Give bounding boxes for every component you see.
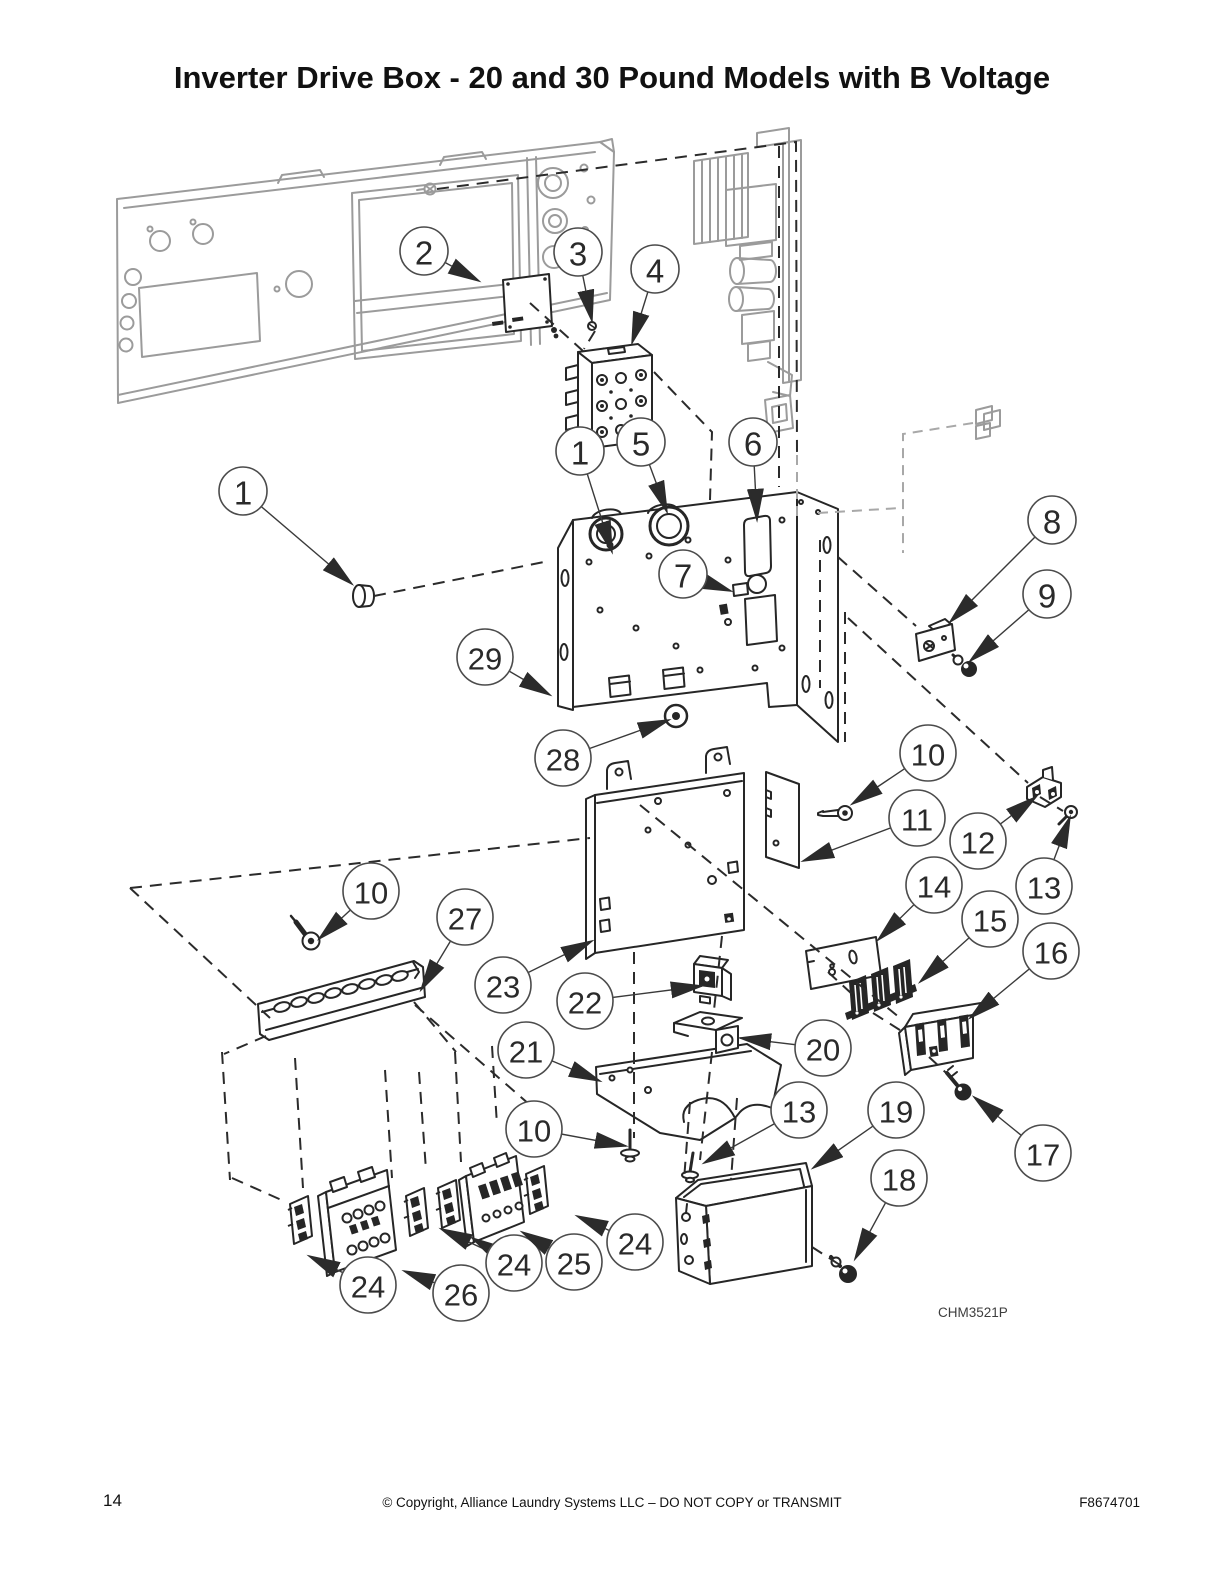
washer-grommet-28 <box>665 705 687 727</box>
exploded-parts-diagram: 2341156789292810111213141516102723222120… <box>0 0 1224 1584</box>
callout-number: 5 <box>632 426 650 463</box>
callout-number: 14 <box>917 870 951 905</box>
slot-6 <box>744 516 771 576</box>
cover-pad-2 <box>503 274 552 332</box>
callout-number: 26 <box>444 1278 478 1313</box>
callout-4: 4 <box>631 245 679 343</box>
callout-24: 24 <box>309 1256 396 1313</box>
aux-contact-24 <box>436 1180 460 1228</box>
mounting-plate-23 <box>586 747 744 959</box>
bushing-1 <box>353 585 374 607</box>
callout-number: 24 <box>351 1270 385 1305</box>
screw-10-right <box>818 806 852 820</box>
page-title: Inverter Drive Box - 20 and 30 Pound Mod… <box>0 60 1224 96</box>
callout-number: 8 <box>1043 504 1061 541</box>
callout-number: 18 <box>882 1163 916 1198</box>
drive-mounting-bracket-29 <box>558 492 838 742</box>
callout-number: 3 <box>569 236 587 273</box>
callout-10: 10 <box>506 1101 626 1157</box>
callout-number: 29 <box>468 642 502 677</box>
callout-number: 13 <box>782 1095 816 1130</box>
callout-number: 23 <box>486 970 520 1005</box>
callout-number: 1 <box>234 475 252 512</box>
callout-number: 12 <box>961 826 995 861</box>
callout-number: 11 <box>901 803 933 838</box>
mounting-clip-ghost <box>976 406 1000 439</box>
rear-panel <box>117 139 614 403</box>
junction-box-cover-19 <box>676 1163 812 1284</box>
callout-number: 16 <box>1034 936 1068 971</box>
callout-10: 10 <box>852 725 956 804</box>
screw-10-left <box>291 916 320 950</box>
callout-5: 5 <box>617 418 667 512</box>
callout-number: 21 <box>509 1035 543 1070</box>
callout-28: 28 <box>535 720 669 786</box>
manual-page: 2341156789292810111213141516102723222120… <box>0 0 1224 1584</box>
callout-14: 14 <box>878 857 962 940</box>
callout-number: 24 <box>497 1248 531 1283</box>
callout-number: 22 <box>568 986 602 1021</box>
callout-number: 24 <box>618 1227 652 1262</box>
callout-number: 20 <box>806 1033 840 1068</box>
callout-13: 13 <box>1016 817 1072 914</box>
inverter-drive-unit <box>694 128 801 433</box>
callout-number: 7 <box>674 558 692 595</box>
screw-17 <box>947 1066 972 1101</box>
figure-code: CHM3521P <box>938 1305 1008 1320</box>
aux-contact-24 <box>404 1188 428 1236</box>
bracket-20 <box>674 1012 742 1053</box>
callout-number: 17 <box>1026 1138 1060 1173</box>
aux-contact-24 <box>288 1196 312 1244</box>
terminal-22 <box>694 956 731 1004</box>
callout-21: 21 <box>498 1022 600 1081</box>
callout-number: 27 <box>448 902 482 937</box>
document-number: F8674701 <box>1079 1495 1140 1510</box>
ground-plate-14 <box>806 937 881 989</box>
contactor-25 <box>459 1153 524 1246</box>
callout-26: 26 <box>404 1265 489 1321</box>
callout-18: 18 <box>855 1150 927 1259</box>
din-end-clamp-12 <box>1027 767 1061 807</box>
callout-number: 9 <box>1038 578 1056 615</box>
callout-number: 15 <box>973 904 1007 939</box>
callout-number: 13 <box>1027 871 1061 906</box>
access-plate-11 <box>766 772 799 868</box>
callout-number: 6 <box>744 426 762 463</box>
callout-2: 2 <box>400 227 479 281</box>
callout-12: 12 <box>950 797 1036 869</box>
aux-contact-24 <box>524 1166 548 1214</box>
callout-number: 28 <box>546 743 580 778</box>
callout-number: 10 <box>517 1114 551 1149</box>
callout-1: 1 <box>219 467 352 584</box>
callout-11: 11 <box>803 790 945 861</box>
callout-number: 25 <box>557 1247 591 1282</box>
callout-9: 9 <box>970 570 1071 661</box>
callout-number: 2 <box>415 235 433 272</box>
callout-29: 29 <box>457 629 550 695</box>
callout-17: 17 <box>974 1097 1071 1181</box>
callout-number: 1 <box>571 435 589 472</box>
fuse-holder-16 <box>899 1003 981 1075</box>
hold-down-bracket-8 <box>916 619 955 661</box>
callout-number: 10 <box>354 876 388 911</box>
callout-number: 19 <box>879 1095 913 1130</box>
grommet-5 <box>650 507 688 545</box>
callout-10: 10 <box>319 863 399 939</box>
callout-number: 10 <box>911 738 945 773</box>
callout-number: 4 <box>646 253 664 290</box>
copyright-line: © Copyright, Alliance Laundry Systems LL… <box>0 1495 1224 1510</box>
din-rail-27 <box>258 961 425 1040</box>
